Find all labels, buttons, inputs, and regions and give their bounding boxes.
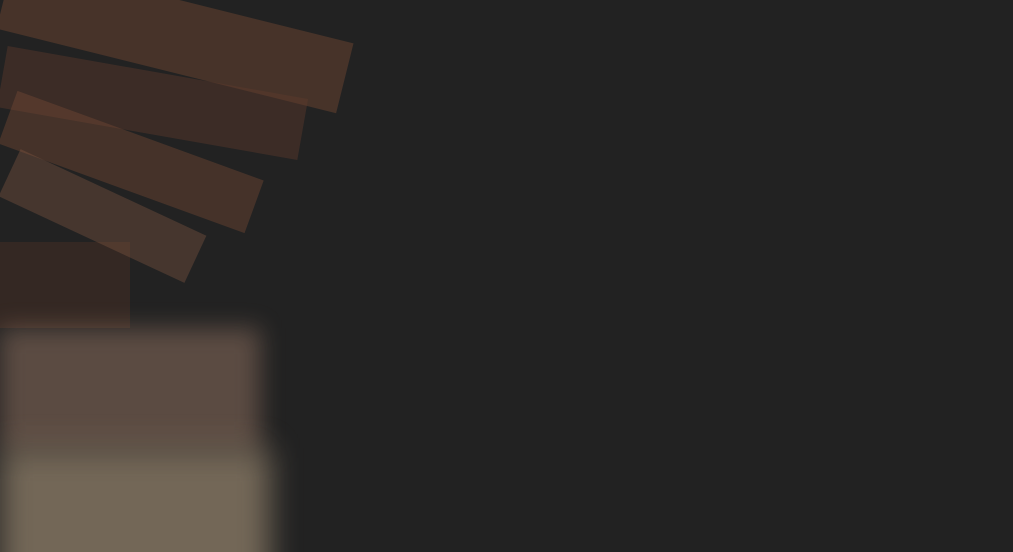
terrain-pale-flat	[0, 448, 270, 552]
satellite-map[interactable]: بلوار ولایت بلوار توحید شهید باقریان بلو…	[0, 0, 1013, 552]
terrain-rock-shadow	[0, 242, 130, 328]
terrain-pink-valley	[0, 328, 260, 448]
